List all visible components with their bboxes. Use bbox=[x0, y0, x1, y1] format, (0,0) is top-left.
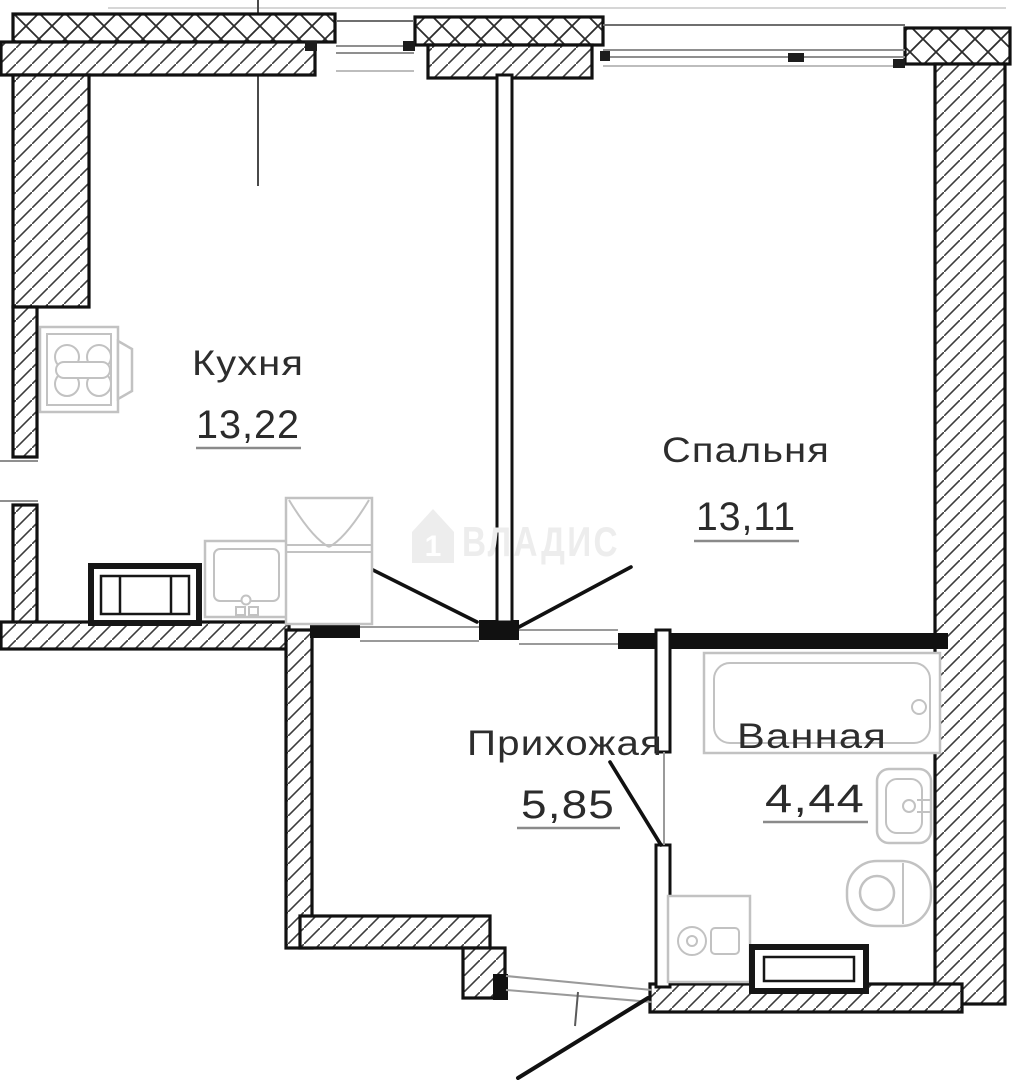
counter-icon bbox=[91, 566, 199, 623]
watermark-icon-label: 1 bbox=[425, 530, 442, 563]
wall-hallway-bottom bbox=[300, 916, 490, 948]
cabinet-double-door-icon bbox=[286, 498, 372, 624]
bathroom-area: 4,44 bbox=[765, 777, 865, 821]
bathtub-drain bbox=[912, 700, 926, 714]
wash-basin-icon bbox=[877, 769, 931, 843]
sink-icon bbox=[205, 541, 287, 617]
hallway-area: 5,85 bbox=[521, 783, 615, 827]
wall-left-mid bbox=[13, 307, 37, 457]
kitchen-label: Кухня bbox=[192, 344, 304, 383]
windows bbox=[0, 21, 905, 501]
wall-top-right bbox=[905, 28, 1010, 64]
wall-kitchen-bottom bbox=[1, 622, 289, 649]
bedroom-window bbox=[603, 25, 905, 66]
kitchen-window bbox=[336, 21, 414, 71]
wall-pier-inner bbox=[428, 45, 592, 78]
bathroom-door-leaf bbox=[610, 762, 661, 845]
bedroom-door-leaf bbox=[519, 567, 631, 627]
wall-left-lower bbox=[13, 505, 37, 630]
wall-left-upper bbox=[13, 75, 89, 307]
wall-top-left-outer bbox=[13, 14, 335, 42]
entrance-door-leaf bbox=[518, 998, 648, 1078]
wall-right bbox=[935, 64, 1005, 1004]
wall-top-left-inner bbox=[1, 42, 315, 75]
kitchen-area: 13,22 bbox=[196, 403, 300, 447]
wall-entry-corner bbox=[493, 974, 508, 1000]
bathroom-label: Ванная bbox=[737, 717, 887, 756]
bedroom-area: 13,11 bbox=[696, 495, 796, 539]
wall-pier-outer bbox=[415, 17, 603, 45]
washing-machine-icon bbox=[668, 896, 750, 982]
radiator-icon bbox=[752, 947, 866, 991]
stove-icon bbox=[40, 327, 132, 412]
bedroom-label: Спальня bbox=[662, 431, 830, 470]
left-wall-vent-window bbox=[0, 461, 38, 501]
hallway-label: Прихожая bbox=[467, 724, 663, 763]
wall-hallway-left bbox=[286, 630, 312, 948]
floor-plan-canvas: 1 ВЛАДИС Кухня 13,22 Спальня 13,11 Прихо… bbox=[0, 0, 1017, 1080]
watermark: 1 ВЛАДИС bbox=[412, 509, 620, 565]
floor-plan: 1 ВЛАДИС Кухня 13,22 Спальня 13,11 Прихо… bbox=[0, 0, 1017, 1080]
watermark-brand: ВЛАДИС bbox=[462, 518, 620, 565]
toilet-icon bbox=[847, 861, 931, 926]
